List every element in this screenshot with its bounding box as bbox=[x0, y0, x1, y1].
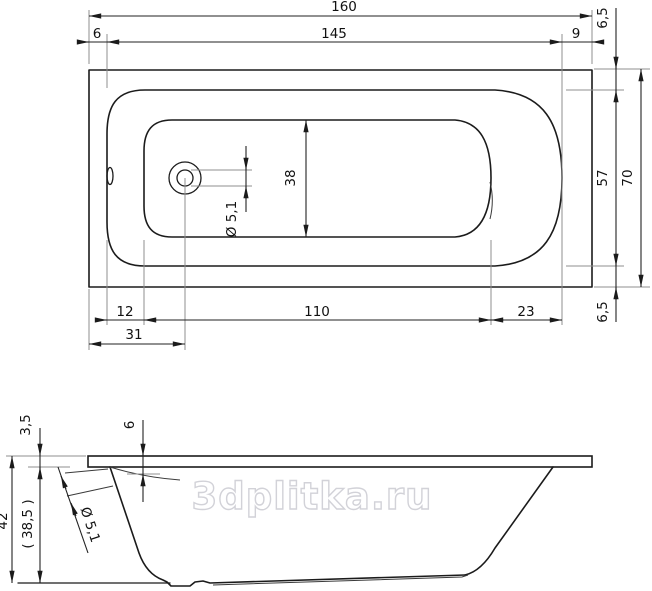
tub-body-profile-right bbox=[465, 467, 553, 575]
dim-label-rim-drop: 6 bbox=[122, 421, 138, 430]
dim-label-basin-width: 38 bbox=[283, 169, 299, 186]
overflow-hole bbox=[107, 168, 113, 185]
dim-label-rim-thickness: 3,5 bbox=[18, 414, 34, 435]
dim-label-overall-length: 160 bbox=[331, 0, 357, 15]
top-view-dimension-labels: 160 6 145 9 6,5 57 70 6,5 38 Ø 5,1 12 11… bbox=[93, 0, 636, 343]
dim-label-bottom-rim-offset: 6,5 bbox=[595, 301, 611, 322]
technical-drawing-page: 160 6 145 9 6,5 57 70 6,5 38 Ø 5,1 12 11… bbox=[0, 0, 652, 591]
side-view-dimension-labels: 3,5 6 42 ( 38,5 ) Ø 5,1 bbox=[0, 414, 138, 548]
dim-label-inner-length: 145 bbox=[321, 26, 347, 42]
top-view-dimension-lines bbox=[78, 8, 641, 344]
rim-slab-profile bbox=[88, 456, 592, 467]
dim-label-drain-center-offset: 31 bbox=[125, 327, 142, 343]
dim-label-right-rim-offset: 9 bbox=[572, 26, 581, 42]
dim-label-overall-height: 42 bbox=[0, 512, 11, 529]
watermark-text: 3dplitka.ru bbox=[192, 475, 433, 518]
dim-label-top-rim-offset: 6,5 bbox=[595, 7, 611, 28]
tub-outer-edge bbox=[89, 70, 592, 287]
bathtub-dimension-drawing: 160 6 145 9 6,5 57 70 6,5 38 Ø 5,1 12 11… bbox=[0, 0, 652, 591]
dim-label-left-rim-offset: 6 bbox=[93, 26, 102, 42]
tub-rim-inner-edge bbox=[107, 90, 562, 266]
top-view bbox=[89, 70, 592, 287]
dim-label-overall-width: 70 bbox=[620, 169, 636, 186]
dim-label-side-drain-diameter: Ø 5,1 bbox=[77, 505, 103, 545]
dim-label-drain-offset-from-rim: 12 bbox=[116, 304, 133, 320]
dim-label-basin-right-offset: 23 bbox=[517, 304, 534, 320]
dim-label-body-height: ( 38,5 ) bbox=[20, 499, 36, 548]
dim-label-drain-diameter: Ø 5,1 bbox=[224, 201, 240, 237]
drain-hole-edge-lower bbox=[67, 486, 113, 496]
tub-basin-edge bbox=[144, 120, 491, 237]
dim-label-basin-bottom-length: 110 bbox=[304, 304, 330, 320]
dim-label-inner-width: 57 bbox=[595, 169, 611, 186]
drain-hole-edge-upper bbox=[65, 469, 108, 473]
top-view-extension-lines bbox=[89, 10, 650, 350]
